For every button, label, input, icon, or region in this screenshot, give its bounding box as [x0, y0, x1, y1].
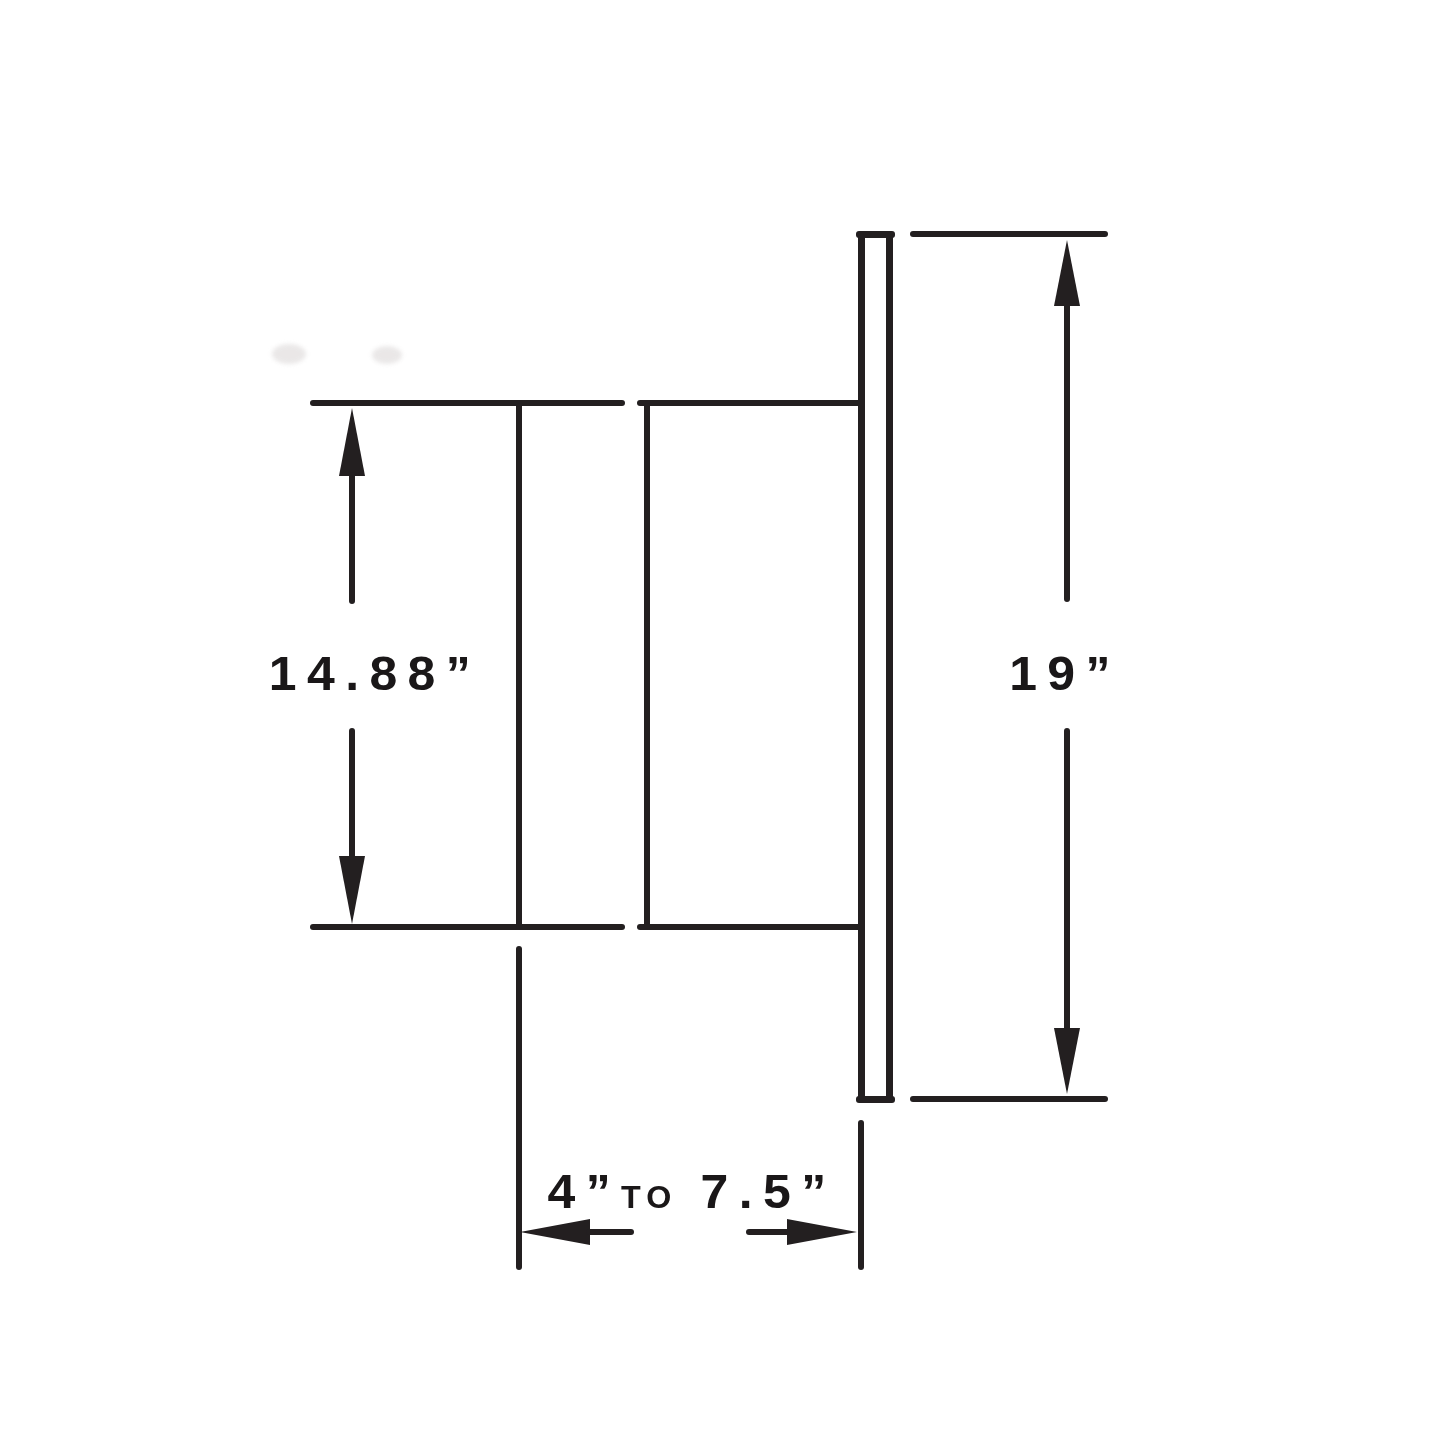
- inner-height-dim-line-upper: [349, 472, 355, 604]
- body-top-edge-right-segment: [637, 400, 861, 406]
- body-top-edge-left-segment: [310, 400, 625, 406]
- depth-dim-line-left: [586, 1229, 634, 1235]
- body-step-edge: [644, 403, 650, 929]
- overall-height-arrowhead-down: [1054, 1028, 1080, 1094]
- overall-height-dim-line-lower: [1064, 728, 1070, 1032]
- body-bottom-edge-right-segment: [637, 924, 861, 930]
- depth-min-value: 4”: [547, 1165, 621, 1218]
- scan-smudge: [272, 344, 306, 364]
- technical-drawing-canvas: 14.88” 19” 4”TO7.5”: [0, 0, 1445, 1445]
- scan-smudge: [372, 346, 402, 364]
- flange-bottom-cap: [856, 1096, 895, 1103]
- overall-height-bottom-extension-line: [910, 1096, 1108, 1102]
- inner-height-label: 14.88”: [245, 648, 505, 700]
- inner-height-arrowhead-down: [339, 856, 365, 924]
- depth-dim-line-right: [746, 1229, 791, 1235]
- overall-height-top-extension-line: [910, 231, 1108, 237]
- inner-height-dim-line-lower: [349, 728, 355, 860]
- depth-max-value: 7.5”: [701, 1165, 837, 1218]
- inner-height-arrowhead-up: [339, 408, 365, 476]
- flange-left-edge: [858, 233, 865, 1102]
- flange-right-edge: [886, 233, 893, 1102]
- overall-height-dim-line-upper: [1064, 300, 1070, 602]
- overall-height-label: 19”: [982, 648, 1148, 700]
- body-left-edge: [516, 403, 522, 929]
- depth-range-connector: TO: [621, 1180, 678, 1215]
- body-bottom-edge-left-segment: [310, 924, 625, 930]
- flange-top-cap: [856, 231, 895, 238]
- depth-range-label: 4”TO7.5”: [510, 1166, 874, 1224]
- overall-height-arrowhead-up: [1054, 240, 1080, 306]
